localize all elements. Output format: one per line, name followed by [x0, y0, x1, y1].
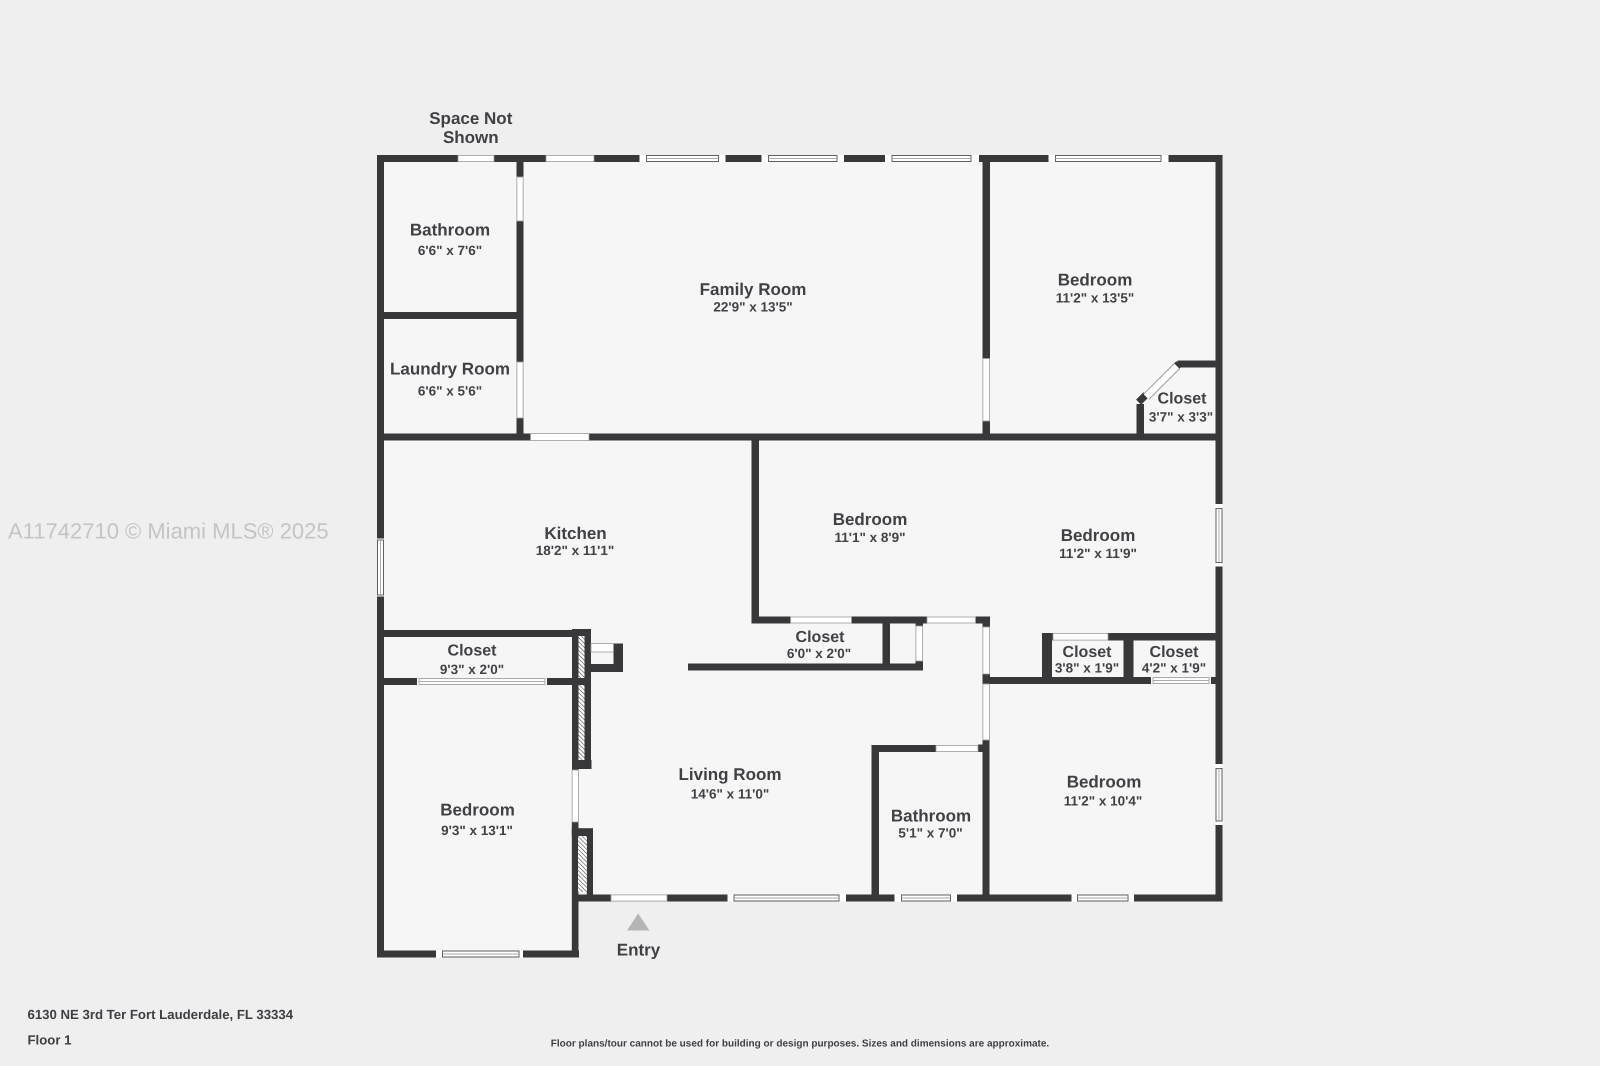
svg-text:3'8" x 1'9": 3'8" x 1'9" [1055, 661, 1119, 676]
svg-text:22'9" x 13'5": 22'9" x 13'5" [713, 300, 792, 315]
svg-text:Closet: Closet [796, 629, 846, 646]
svg-text:11'2" x 10'4": 11'2" x 10'4" [1064, 793, 1143, 808]
svg-text:6130 NE 3rd Ter Fort Lauderdal: 6130 NE 3rd Ter Fort Lauderdale, FL 3333… [28, 1007, 294, 1022]
svg-text:9'3" x 13'1": 9'3" x 13'1" [441, 823, 513, 838]
svg-text:Closet: Closet [448, 643, 498, 660]
svg-text:5'1" x 7'0": 5'1" x 7'0" [898, 826, 962, 841]
svg-text:Closet: Closet [1150, 644, 1200, 661]
svg-text:Kitchen: Kitchen [544, 524, 606, 543]
svg-text:Bedroom: Bedroom [1061, 526, 1136, 545]
svg-text:Floor 1: Floor 1 [28, 1033, 72, 1048]
svg-text:6'0" x 2'0": 6'0" x 2'0" [787, 646, 851, 661]
svg-text:Bedroom: Bedroom [1058, 270, 1133, 289]
svg-text:11'2" x 13'5": 11'2" x 13'5" [1056, 291, 1135, 306]
svg-text:Family Room: Family Room [700, 280, 807, 299]
svg-text:9'3" x 2'0": 9'3" x 2'0" [440, 662, 504, 677]
svg-text:Bedroom: Bedroom [1067, 773, 1142, 792]
svg-text:Closet: Closet [1158, 391, 1208, 408]
svg-text:6'6" x 7'6": 6'6" x 7'6" [418, 243, 482, 258]
svg-text:11'1" x 8'9": 11'1" x 8'9" [834, 530, 905, 545]
svg-text:Closet: Closet [1063, 644, 1113, 661]
svg-text:Bedroom: Bedroom [833, 510, 908, 529]
svg-text:11'2" x 11'9": 11'2" x 11'9" [1059, 546, 1137, 561]
svg-text:Floor plans/tour cannot be use: Floor plans/tour cannot be used for buil… [551, 1039, 1050, 1050]
svg-text:Space Not: Space Not [429, 109, 512, 128]
svg-text:Entry: Entry [617, 940, 661, 959]
svg-text:Bedroom: Bedroom [440, 800, 515, 819]
svg-text:Shown: Shown [443, 128, 499, 147]
svg-text:14'6" x 11'0": 14'6" x 11'0" [691, 786, 770, 801]
svg-text:18'2" x 11'1": 18'2" x 11'1" [536, 543, 615, 558]
svg-text:4'2" x 1'9": 4'2" x 1'9" [1142, 661, 1206, 676]
svg-text:A11742710 © Miami MLS® 2025: A11742710 © Miami MLS® 2025 [8, 519, 329, 544]
svg-text:Living Room: Living Room [679, 765, 782, 784]
svg-text:Bathroom: Bathroom [891, 806, 971, 825]
svg-text:6'6" x 5'6": 6'6" x 5'6" [418, 383, 482, 398]
svg-text:3'7" x 3'3": 3'7" x 3'3" [1149, 409, 1213, 424]
svg-text:Laundry Room: Laundry Room [390, 360, 510, 379]
svg-text:Bathroom: Bathroom [410, 220, 490, 239]
